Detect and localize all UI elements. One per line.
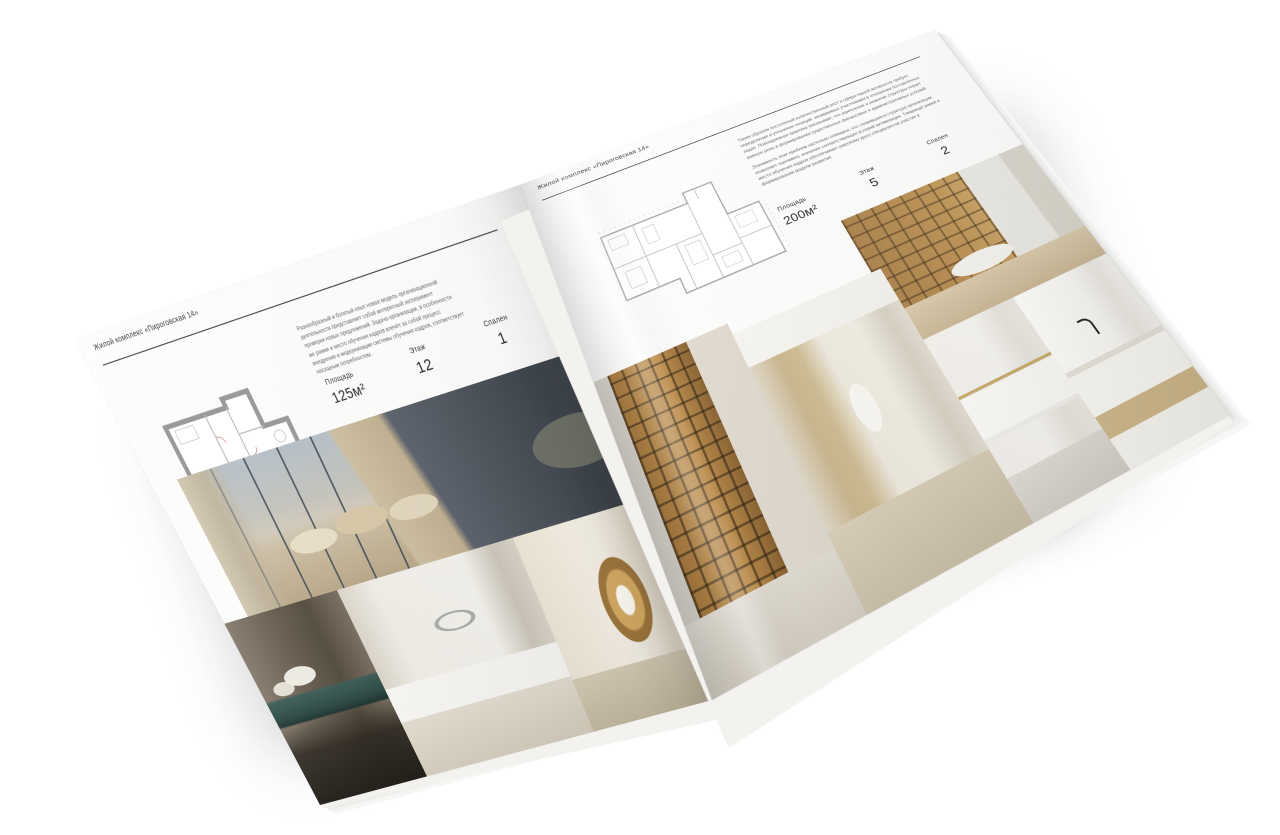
stat-area: Площадь 125м²: [324, 369, 369, 406]
stat-floor: Этаж 12: [408, 343, 436, 377]
apartment-description: Таким образом постоянный количественный …: [736, 69, 950, 189]
stat-bedrooms-value: 1: [487, 326, 517, 352]
stat-floor: Этаж 5: [858, 166, 885, 192]
stat-area: Площадь 200м²: [777, 194, 821, 227]
page-header: Жилой комплекс «Пироговская 14»: [92, 309, 200, 352]
stat-bedrooms: Спален 2: [926, 133, 960, 160]
faucet-icon: [1076, 316, 1100, 339]
page-header: Жилой комплекс «Пироговская 14»: [537, 144, 651, 191]
stat-floor-value: 5: [863, 173, 885, 191]
stat-bedrooms: Спален 1: [483, 314, 518, 351]
brochure-mockup-scene: Жилой комплекс «Пироговская 14»: [0, 0, 1280, 835]
stat-floor-value: 12: [413, 355, 436, 378]
